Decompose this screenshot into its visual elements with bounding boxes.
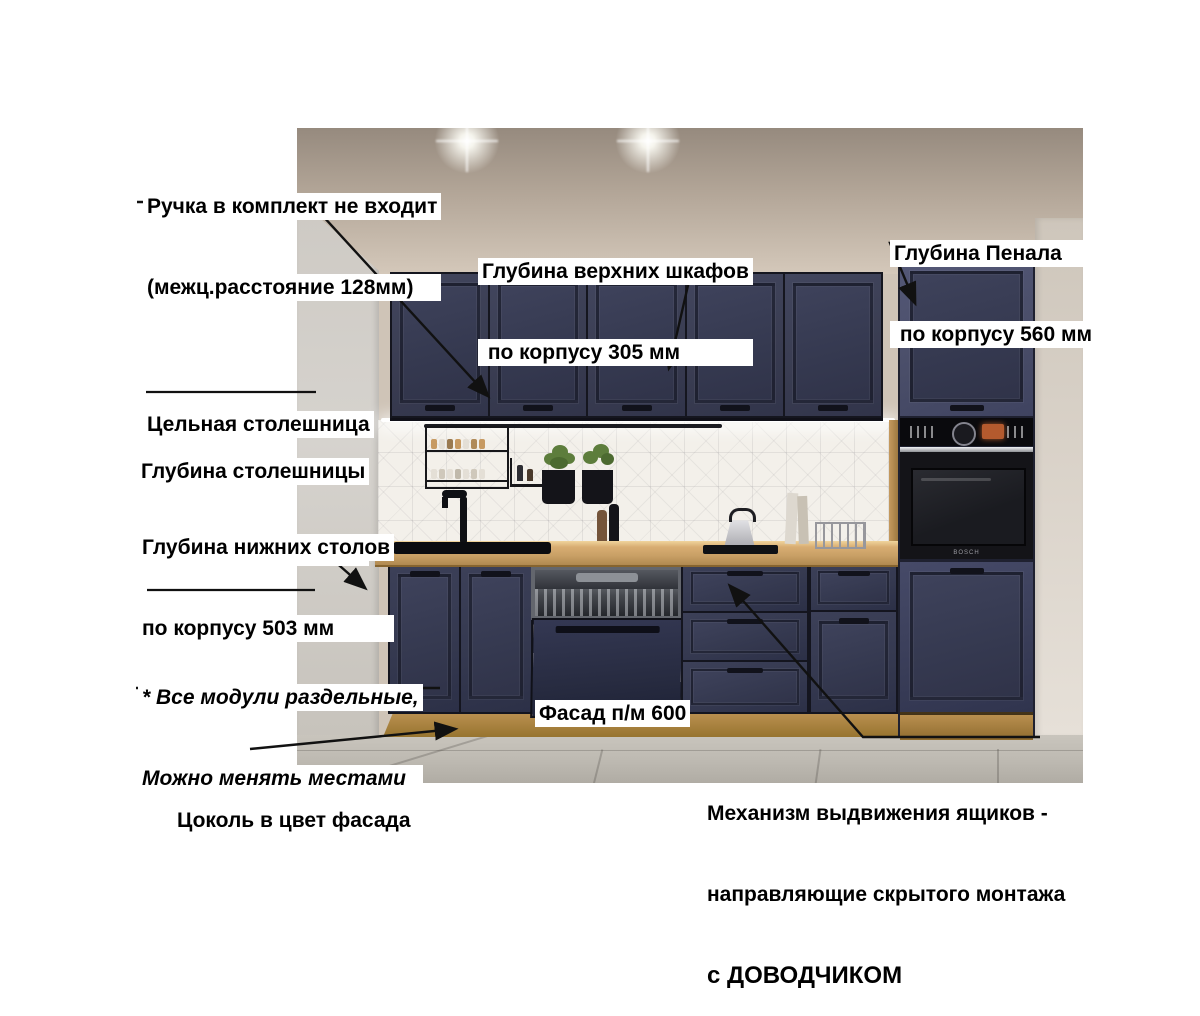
oven-display	[982, 424, 1004, 439]
door-handle	[556, 626, 660, 633]
kettle-handle	[729, 508, 756, 522]
drawer-handle	[727, 571, 763, 576]
drawer-panel	[691, 669, 799, 705]
spice-grinder	[597, 510, 607, 541]
door-handle	[410, 571, 440, 577]
cutting-board	[797, 496, 809, 544]
drawer-panel	[691, 620, 799, 653]
dishwasher-interior	[535, 570, 678, 616]
spice-jars	[430, 438, 486, 450]
oven-control-icons	[1007, 426, 1027, 438]
oven-control-icons	[910, 426, 936, 438]
door-handle	[523, 405, 553, 411]
door-panel	[793, 283, 873, 403]
door-handle	[720, 405, 750, 411]
tall-cabinet-plinth	[900, 712, 1033, 740]
label-plinth: Цоколь в цвет фасада	[173, 753, 415, 861]
drawer-handle	[838, 571, 870, 576]
drawer-handle	[727, 668, 763, 673]
faucet	[460, 497, 467, 543]
door-panel	[819, 621, 888, 699]
ceiling-spotlight-icon	[611, 128, 685, 178]
shelf-bar	[427, 480, 507, 482]
base-cabinet-door	[461, 565, 531, 712]
base-cabinet-door	[811, 612, 896, 712]
hanging-plant	[581, 441, 615, 471]
door-handle	[950, 405, 984, 411]
page: { "labels": { "handle_note": {"lines": […	[0, 0, 1200, 900]
oven: BOSCH	[900, 452, 1033, 559]
drawer-front	[683, 565, 807, 611]
oven-brand-logo: BOSCH	[953, 550, 979, 556]
spice-shelf	[425, 426, 509, 489]
hanging-pot	[582, 470, 613, 504]
oven-window	[911, 468, 1026, 546]
label-dishwasher-facade: Фасад п/м 600	[535, 646, 690, 754]
floor-grout-line	[593, 749, 604, 783]
upper-cabinet-door	[785, 274, 881, 416]
bottle	[527, 469, 533, 481]
label-handle-note: Ручка в комплект не входит (межц.расстоя…	[143, 139, 441, 328]
hanging-plant	[542, 441, 576, 471]
drawer-front	[683, 662, 807, 712]
oven-dial	[952, 422, 976, 446]
dish-rack	[815, 522, 866, 549]
drawer-front	[683, 613, 807, 660]
oven-reflection	[921, 478, 991, 481]
door-handle	[818, 405, 848, 411]
label-penal-depth: Глубина Пенала по корпусу 560 мм	[890, 186, 1096, 375]
dishwasher-open	[531, 566, 682, 620]
dishwasher-dishes	[535, 589, 678, 616]
drawer-handle	[727, 619, 763, 624]
tall-cabinet-lower-front	[900, 562, 1033, 712]
hanging-pot	[542, 470, 575, 504]
door-handle	[839, 618, 869, 624]
mini-shelf	[510, 458, 542, 487]
oven-control-panel	[900, 418, 1033, 446]
sink	[393, 542, 551, 554]
shelf-bar	[427, 450, 507, 452]
dishwasher-inner-handle	[576, 573, 638, 582]
door-handle	[622, 405, 652, 411]
label-upper-depth: Глубина верхних шкафов по корпусу 305 мм	[478, 204, 753, 393]
door-panel	[469, 574, 523, 699]
drawer-panel	[691, 572, 799, 604]
label-drawer-mechanism: Механизм выдвижения ящиков - направляющи…	[703, 746, 1069, 1016]
door-handle	[481, 571, 511, 577]
drawer-front	[811, 565, 896, 610]
door-handle	[425, 405, 455, 411]
spice-jars	[430, 468, 486, 480]
bottle	[517, 465, 523, 481]
portable-hob	[703, 545, 778, 554]
countertop-side-panel	[889, 420, 898, 541]
spice-grinder	[609, 504, 619, 541]
door-handle	[950, 568, 984, 574]
faucet	[442, 497, 448, 508]
door-panel	[910, 572, 1023, 700]
